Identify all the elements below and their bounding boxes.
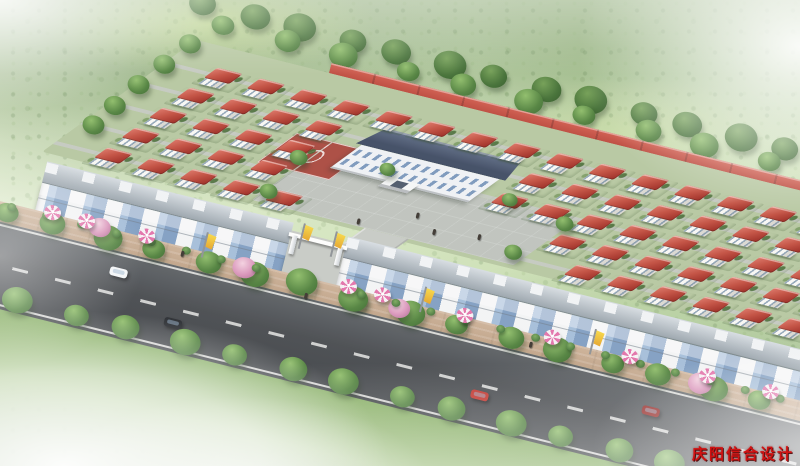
aerial-rendering-canvas: 庆阳信合设计 xyxy=(0,0,800,466)
designer-watermark: 庆阳信合设计 xyxy=(692,443,794,464)
